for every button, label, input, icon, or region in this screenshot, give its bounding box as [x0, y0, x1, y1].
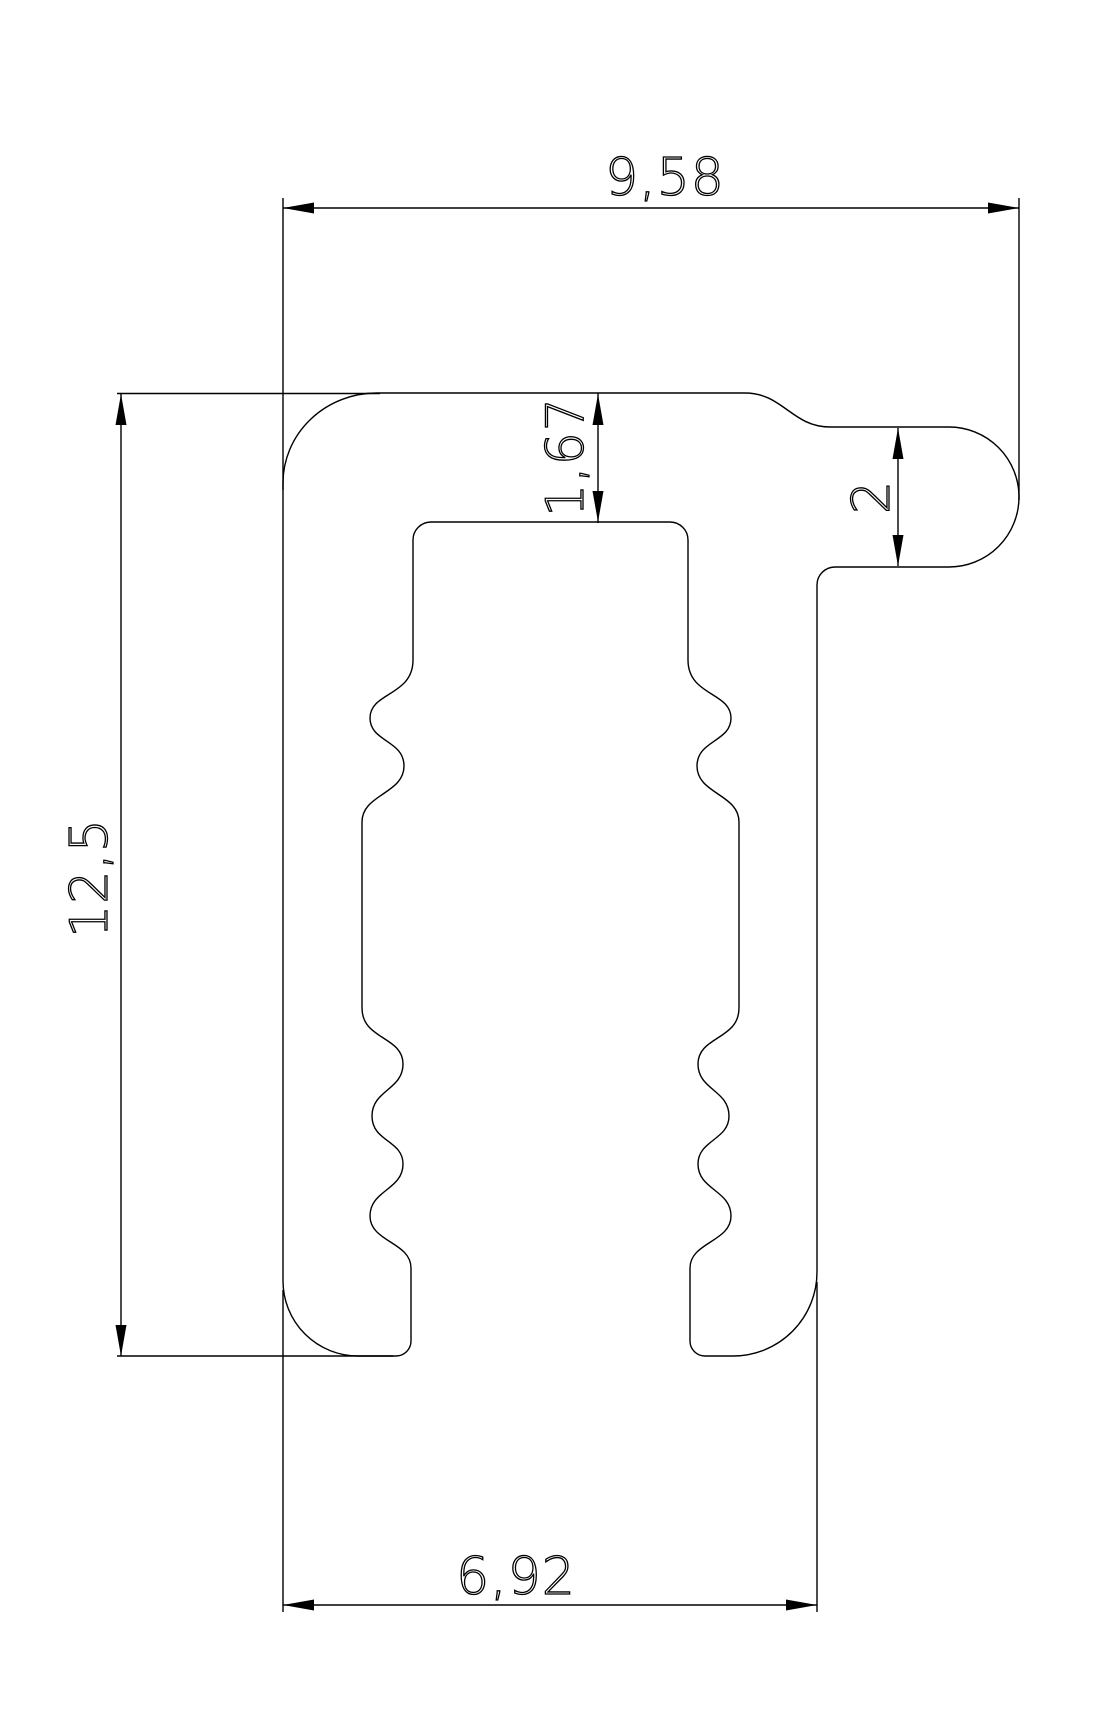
dim-label-groove-top-offset: 1,67 [536, 397, 596, 517]
arrowhead-left-icon [283, 203, 314, 214]
arrowhead-down-icon [116, 1325, 127, 1356]
arrowhead-up-icon [893, 428, 904, 459]
technical-drawing-canvas: 9,58 12,5 1,67 2 6,92 [0, 0, 1115, 1723]
dim-label-bottom-width: 6,92 [456, 1547, 576, 1607]
arrowhead-right-icon [988, 203, 1019, 214]
arrowhead-down-icon [893, 535, 904, 566]
dimension-overall-height [116, 394, 394, 1357]
drawing-linework [0, 0, 1115, 1723]
dimension-top-width [283, 198, 1019, 500]
dim-label-side-tab-height: 2 [842, 480, 902, 514]
dim-label-overall-height: 12,5 [60, 818, 120, 938]
profile-outline-path [283, 393, 1019, 1356]
dim-label-top-width: 9,58 [605, 148, 725, 208]
arrowhead-right-icon [786, 1600, 817, 1611]
arrowhead-left-icon [283, 1600, 314, 1611]
arrowhead-up-icon [116, 394, 127, 425]
profile-outline [283, 393, 1019, 1356]
